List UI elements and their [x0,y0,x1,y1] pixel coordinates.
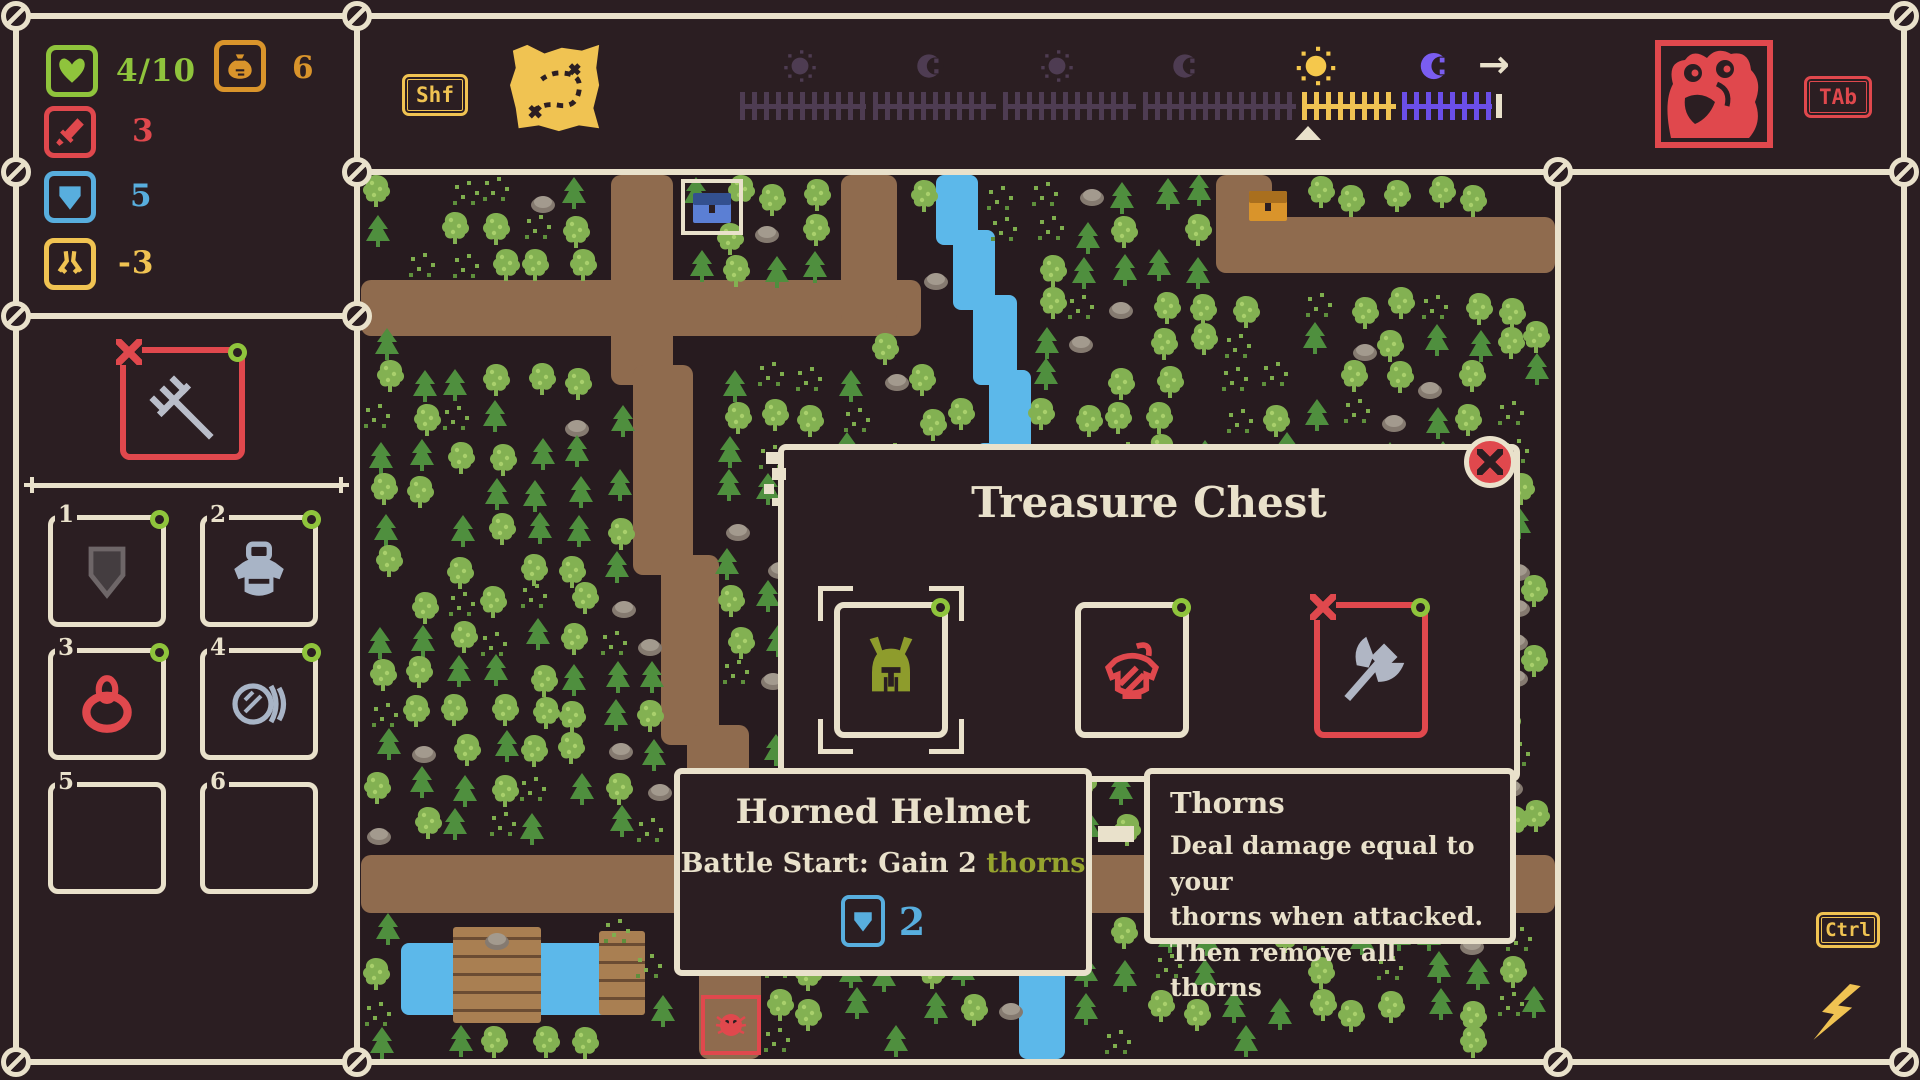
stat-value: 2 [899,899,925,944]
ctrl-key-label: Ctrl [1825,919,1871,941]
shield-icon [44,171,96,223]
timeline-tick [764,92,769,120]
frame-rivet-icon [1,1047,31,1077]
tooltip-connector [1098,826,1134,842]
current-time-marker [1295,126,1321,140]
timeline-tick [1143,92,1148,120]
divider-plus-icon [333,477,349,493]
frame-rivet-icon [342,1047,372,1077]
timeline-tick [1450,92,1455,120]
timeline-tick [921,92,926,120]
modal-title: Treasure Chest [784,478,1514,527]
effect-prefix: Battle Start: Gain 2 [681,848,987,879]
timeline-tick [885,92,890,120]
timeline-tick [860,92,865,120]
shift-key-label: Shf [416,83,454,107]
ctrl-keycap: Ctrl [1816,912,1880,948]
timeline-tick [1003,92,1008,120]
green-dot-icon [225,340,250,365]
red-armor-icon [1094,632,1170,708]
reward-item-battle-axe[interactable] [1314,602,1428,738]
effect-keyword[interactable]: thorns [986,848,1085,879]
timeline-tick [1111,92,1116,120]
timeline-tick [1227,92,1232,120]
frame-rivet-icon [342,1,372,31]
timeline-tick [1123,92,1128,120]
timeline-tick [1314,92,1319,120]
timeline-tick [1003,104,1136,109]
frame-rivet-icon [1889,1,1919,31]
item-effect-text: Battle Start: Gain 2 thorns [680,848,1086,879]
attack-value: 3 [132,113,155,149]
frame-rivet-icon [1,301,31,331]
torn-edge-decor [764,484,774,494]
timeline-tick [945,92,950,120]
timeline-tick [1350,92,1355,120]
frame-rivet-icon [342,157,372,187]
frame-rivet-icon [1,157,31,187]
moon-dim-icon [913,49,947,83]
tab-key-label: TAb [1819,85,1857,109]
game-screen: 4/10 6 3 5 -3 [0,0,1920,1080]
equipped-weapon-slot[interactable] [120,347,245,460]
slot-number: 4 [207,636,229,659]
defense-value: 5 [130,178,153,214]
timeline-tick [752,92,757,120]
torn-edge-decor [772,468,786,480]
timeline-tick [957,92,962,120]
heart-icon [46,45,98,97]
armor-item-icon [226,538,292,604]
red-beast-portrait[interactable] [1655,40,1773,148]
greaves-icon [44,238,96,290]
inventory-slot-5[interactable]: 5 [48,782,166,894]
divider-plus-icon [24,477,40,493]
speed-value: -3 [118,245,154,281]
sun-current-icon [1294,44,1338,88]
timeline-tick [1203,92,1208,120]
green-dot-icon [147,507,172,532]
slot-number: 3 [55,636,77,659]
timeline-tick [824,92,829,120]
item-tooltip: Horned Helmet Battle Start: Gain 2 thorn… [674,768,1092,976]
shift-keycap: Shf [402,74,468,116]
moon-upcoming-icon [1416,47,1454,85]
timeline-tick [1374,92,1379,120]
timeline-tick [848,92,853,120]
tab-keycap: TAb [1804,76,1872,118]
timeline-tick [1015,92,1020,120]
tooltip-line: thorns when attacked. [1170,899,1490,935]
border-topbar [354,169,1907,175]
timeline-tick [1414,92,1419,120]
timeline-tick [1039,92,1044,120]
timeline-tick [1251,92,1256,120]
reward-item-red-armor[interactable] [1075,602,1189,738]
timeline-tick [1362,92,1367,120]
close-button[interactable] [1464,436,1516,488]
timeline-tick [1486,92,1491,120]
timeline-tick [1099,92,1104,120]
timeline-tick [1215,92,1220,120]
timeline-tick [1402,92,1407,120]
frame-rivet-icon [1,1,31,31]
ring-item-icon [74,671,140,737]
timeline-tick [1155,92,1160,120]
timeline-tick [981,92,986,120]
pitchfork-icon [144,365,224,445]
bandage-roll-icon [227,672,291,736]
timeline-tick [1326,92,1331,120]
gold-value: 6 [292,50,315,86]
shield-item-icon [75,539,139,603]
border-top [13,13,1907,19]
slot-number: 1 [55,503,77,526]
moon-dim-icon [1169,49,1203,83]
timeline-tick [873,92,878,120]
inventory-slot-2[interactable]: 2 [200,515,318,627]
timeline-tick [1051,92,1056,120]
timeline-arrow-icon: → [1478,42,1510,86]
timeline-tick [1496,94,1502,118]
treasure-map-icon[interactable] [510,44,602,132]
timeline-tick [1075,92,1080,120]
sun-dim-icon [782,48,818,84]
timeline-tick [1027,92,1032,120]
slot-number: 6 [207,770,229,793]
timeline-tick [1338,92,1343,120]
slot-number: 5 [55,770,77,793]
timeline-tick [1386,92,1391,120]
divider-stats [13,313,360,319]
timeline-tick [812,92,817,120]
horned-helmet-icon [853,632,929,708]
inventory-slot-1[interactable]: 1 [48,515,166,627]
timeline-tick [776,92,781,120]
timeline-tick [1179,92,1184,120]
tooltip-line: Deal damage equal to your [1170,828,1490,899]
frame-rivet-icon [1543,1047,1573,1077]
timeline-tick [740,92,745,120]
timeline-tick [933,92,938,120]
slot-number: 2 [207,503,229,526]
battle-axe-icon [1333,632,1409,708]
timeline-tick [788,92,793,120]
keyword-tooltip: Thorns Deal damage equal to your thorns … [1144,768,1516,944]
green-dot-icon [299,640,324,665]
timeline-tick [1474,92,1479,120]
timeline-tick [800,92,805,120]
torn-edge-decor [766,452,778,464]
inventory-slot-4[interactable]: 4 [200,648,318,760]
cursed-x-icon [1310,594,1336,620]
timeline-tick [1263,92,1268,120]
timeline-tick [1287,92,1292,120]
timeline-tick [1302,92,1307,120]
reward-item-horned-helmet[interactable] [834,602,948,738]
timeline-tick [909,92,914,120]
border-map-right [1555,169,1561,1065]
timeline-tick [1438,92,1443,120]
divider-equipment [30,483,342,488]
cursed-x-icon [116,339,142,365]
timeline-tick [1426,92,1431,120]
tooltip-line: Then remove all thorns [1170,935,1490,1006]
timeline-tick [1167,92,1172,120]
timeline-tick [1275,92,1280,120]
green-dot-icon [299,507,324,532]
frame-rivet-icon [342,301,372,331]
close-x-icon [1477,449,1503,475]
torn-edge-decor [772,498,784,506]
green-dot-icon [147,640,172,665]
item-tooltip-title: Horned Helmet [680,792,1086,832]
keyword-tooltip-title: Thorns [1170,786,1490,820]
keyword-tooltip-body: Deal damage equal to your thorns when at… [1170,828,1490,1006]
health-value: 4/10 [116,53,196,89]
sun-dim-icon [1039,48,1075,84]
timeline-tick [1063,92,1068,120]
item-stat-row: 2 [680,895,1086,947]
inventory-slot-3[interactable]: 3 [48,648,166,760]
inventory-slot-6[interactable]: 6 [200,782,318,894]
frame-rivet-icon [1889,1047,1919,1077]
lightning-bolt-icon[interactable] [1808,984,1864,1042]
border-bottom [13,1059,1907,1065]
sword-icon [44,106,96,158]
timeline-tick [1191,92,1196,120]
timeline-tick [897,92,902,120]
shield-icon [841,895,885,947]
timeline-tick [1087,92,1092,120]
timeline-tick [969,92,974,120]
timeline-tick [1239,92,1244,120]
frame-rivet-icon [1543,157,1573,187]
timeline-tick [1462,92,1467,120]
frame-rivet-icon [1889,157,1919,187]
timeline-tick [836,92,841,120]
money-bag-icon [214,40,266,92]
